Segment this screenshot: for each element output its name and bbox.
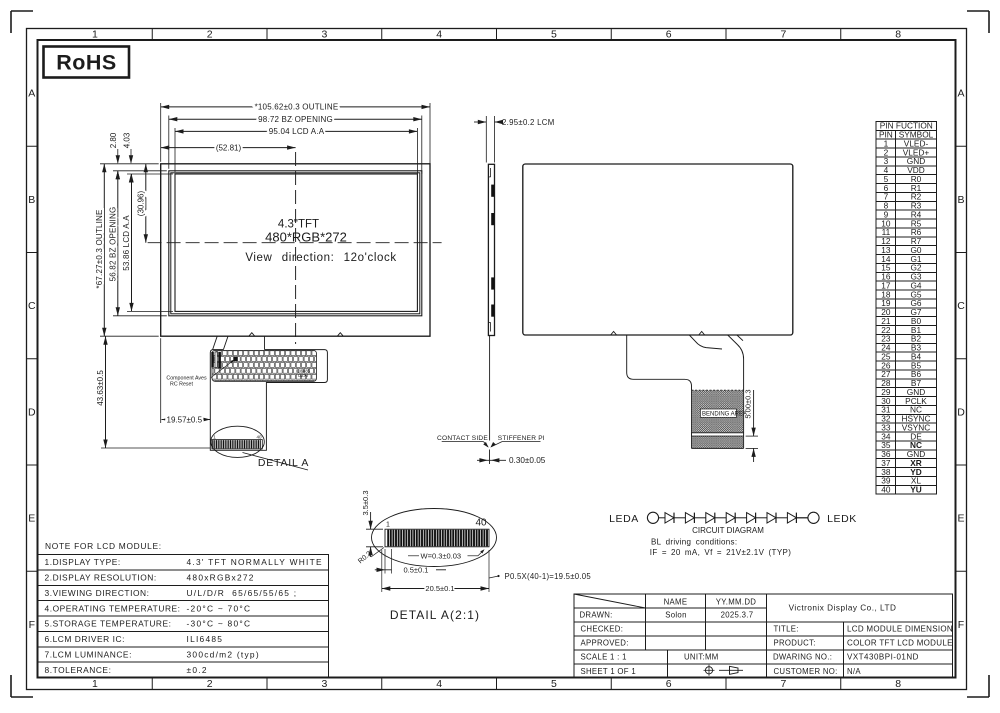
svg-text:4.3' TFT NORMALLY WHITE: 4.3' TFT NORMALLY WHITE [187, 557, 323, 567]
svg-text:Solon: Solon [665, 611, 686, 620]
svg-text:COLOR TFT LCD MODULE: COLOR TFT LCD MODULE [847, 639, 953, 648]
svg-text:480xRGBx272: 480xRGBx272 [187, 573, 255, 583]
svg-text:IF = 20 mA, Vf = 21V±2.1V (TYP: IF = 20 mA, Vf = 21V±2.1V (TYP) [650, 548, 792, 557]
svg-text:CHECKED:: CHECKED: [581, 625, 624, 634]
svg-text:LEDA: LEDA [609, 513, 639, 525]
svg-text:BENDING AREA: BENDING AREA [702, 412, 747, 418]
svg-text:0.30±0.05: 0.30±0.05 [509, 456, 546, 465]
svg-text:2: 2 [207, 678, 213, 690]
svg-text:480*RGB*272: 480*RGB*272 [265, 230, 347, 245]
svg-text:98.72 BZ OPENING: 98.72 BZ OPENING [258, 115, 333, 124]
svg-text:View direction: 12o'clock: View direction: 12o'clock [245, 252, 396, 264]
svg-text:LCD MODULE DIMENSION: LCD MODULE DIMENSION [847, 625, 953, 634]
svg-text:D: D [28, 406, 36, 418]
svg-text:CUSTOMER NO:: CUSTOMER NO: [774, 667, 838, 676]
svg-text:0.5±0.1: 0.5±0.1 [404, 565, 429, 574]
svg-text:20.5±0.1: 20.5±0.1 [425, 584, 454, 593]
svg-text:6: 6 [666, 29, 672, 41]
svg-text:NOTE FOR LCD MODULE:: NOTE FOR LCD MODULE: [45, 541, 162, 551]
svg-text:2.95±0.2 LCM: 2.95±0.2 LCM [502, 118, 555, 127]
svg-text:(30.96): (30.96) [136, 190, 145, 216]
svg-text:5: 5 [551, 29, 557, 41]
svg-text:300cd/m2 (typ): 300cd/m2 (typ) [187, 649, 260, 659]
svg-text:5: 5 [551, 678, 557, 690]
svg-text:DZXI: DZXI [298, 373, 308, 378]
svg-text:1: 1 [92, 678, 98, 690]
svg-text:F: F [958, 619, 964, 631]
svg-text:B: B [957, 194, 964, 206]
svg-text:4: 4 [436, 29, 442, 41]
svg-text:P0.5X(40-1)=19.5±0.05: P0.5X(40-1)=19.5±0.05 [505, 572, 592, 581]
svg-text:8.TOLERANCE:: 8.TOLERANCE: [45, 665, 112, 675]
svg-text:40: 40 [256, 435, 262, 440]
svg-text:APPROVED:: APPROVED: [581, 639, 629, 648]
svg-text:43.63±0.5: 43.63±0.5 [96, 370, 105, 406]
svg-text:40: 40 [881, 485, 891, 495]
svg-text:1: 1 [92, 29, 98, 41]
svg-text:2.DISPLAY RESOLUTION:: 2.DISPLAY RESOLUTION: [45, 573, 157, 583]
svg-text:N/A: N/A [847, 667, 861, 676]
svg-text:7: 7 [780, 29, 786, 41]
svg-text:7.LCM LUMINANCE:: 7.LCM LUMINANCE: [45, 649, 132, 659]
svg-text:W=0.3±0.03: W=0.3±0.03 [421, 552, 462, 561]
svg-text:YY.MM.DD: YY.MM.DD [716, 598, 756, 607]
svg-text:(52.81): (52.81) [216, 143, 242, 152]
svg-text:SHEET 1 OF 1: SHEET 1 OF 1 [581, 667, 636, 676]
svg-text:4: 4 [436, 678, 442, 690]
svg-text:1.DISPLAY TYPE:: 1.DISPLAY TYPE: [45, 557, 121, 567]
svg-text:1: 1 [386, 522, 390, 529]
svg-text:D: D [957, 406, 965, 418]
svg-text:5.STORAGE TEMPERATURE:: 5.STORAGE TEMPERATURE: [45, 619, 172, 629]
svg-text:-30°C ~ 80°C: -30°C ~ 80°C [187, 619, 252, 629]
svg-text:4.OPERATING TEMPERATURE:: 4.OPERATING TEMPERATURE: [45, 603, 181, 613]
svg-text:Victronix Display Co., LTD: Victronix Display Co., LTD [789, 604, 897, 613]
svg-text:40: 40 [475, 518, 487, 529]
svg-text:5.00±0.3: 5.00±0.3 [744, 389, 753, 418]
svg-text:RC Reset: RC Reset [170, 381, 193, 387]
svg-text:RoHS: RoHS [56, 51, 117, 75]
svg-text:DRAWN:: DRAWN: [580, 611, 613, 620]
svg-text:19.57±0.5: 19.57±0.5 [167, 415, 203, 424]
svg-text:2.80: 2.80 [109, 132, 118, 148]
svg-text:STIFFENER PI: STIFFENER PI [498, 435, 545, 442]
svg-text:E: E [957, 513, 964, 525]
svg-text:C: C [957, 300, 965, 312]
svg-text:2025.3.7: 2025.3.7 [721, 611, 754, 620]
svg-text:53.86 LCD A.A: 53.86 LCD A.A [122, 215, 131, 271]
svg-text:VXT430BPI-01ND: VXT430BPI-01ND [847, 653, 919, 662]
svg-text:LEDK: LEDK [827, 513, 857, 525]
svg-text:U/L/D/R 65/65/55/65 ;: U/L/D/R 65/65/55/65 ; [187, 588, 298, 598]
svg-text:8: 8 [895, 29, 901, 41]
svg-text:PRODUCT:: PRODUCT: [774, 639, 816, 648]
svg-text:6.LCM DRIVER IC:: 6.LCM DRIVER IC: [45, 634, 125, 644]
svg-text:3.VIEWING DIRECTION:: 3.VIEWING DIRECTION: [45, 588, 150, 598]
svg-text:NAME: NAME [664, 598, 688, 607]
svg-text:B: B [28, 194, 35, 206]
svg-text:E: E [28, 513, 35, 525]
svg-text:6: 6 [666, 678, 672, 690]
svg-text:95.04 LCD A.A: 95.04 LCD A.A [269, 127, 325, 136]
svg-text:SCALE 1 : 1: SCALE 1 : 1 [581, 653, 627, 662]
svg-text:C: C [28, 300, 36, 312]
svg-text:BL driving conditions:: BL driving conditions: [651, 537, 737, 546]
svg-text:CIRCUIT DIAGRAM: CIRCUIT DIAGRAM [692, 526, 764, 535]
svg-text:4.03: 4.03 [123, 132, 132, 148]
svg-text:F: F [29, 619, 35, 631]
svg-text:3: 3 [321, 678, 327, 690]
svg-text:DWARING NO.:: DWARING NO.: [773, 653, 832, 662]
svg-text:UNIT:MM: UNIT:MM [684, 653, 719, 662]
svg-text:ILI6485: ILI6485 [187, 634, 224, 644]
svg-text:*67.27±0.3 OUTLINE: *67.27±0.3 OUTLINE [95, 209, 104, 288]
svg-text:DETAIL A: DETAIL A [258, 457, 309, 469]
svg-text:±0.2: ±0.2 [187, 665, 208, 675]
svg-text:3: 3 [321, 29, 327, 41]
svg-text:YU: YU [910, 485, 922, 495]
svg-text:TITLE:: TITLE: [774, 625, 799, 634]
svg-text:*105.62±0.3 OUTLINE: *105.62±0.3 OUTLINE [255, 103, 339, 112]
svg-text:3.5±0.3: 3.5±0.3 [361, 491, 370, 516]
svg-text:7: 7 [780, 678, 786, 690]
svg-text:CONTACT SIDE: CONTACT SIDE [437, 435, 488, 442]
svg-text:-20°C ~ 70°C: -20°C ~ 70°C [187, 603, 252, 613]
svg-text:DETAIL A(2:1): DETAIL A(2:1) [390, 608, 480, 622]
svg-text:A: A [28, 88, 35, 100]
svg-text:A: A [957, 88, 964, 100]
svg-text:8: 8 [895, 678, 901, 690]
svg-text:56.82 BZ OPENING: 56.82 BZ OPENING [108, 207, 117, 282]
svg-text:2: 2 [207, 29, 213, 41]
